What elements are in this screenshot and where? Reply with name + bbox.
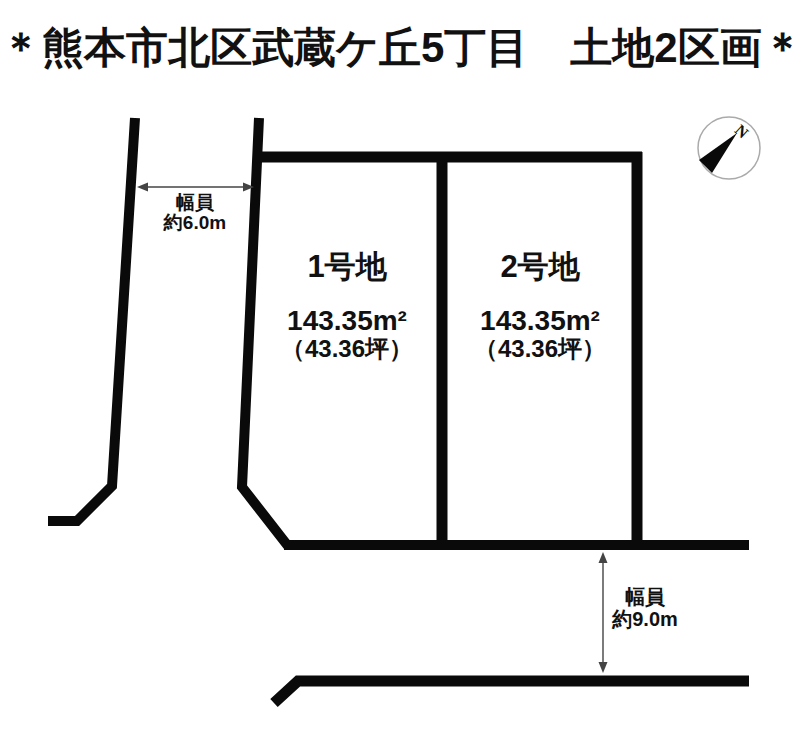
bottom-road-width-label: 幅員 約9.0m xyxy=(565,586,725,630)
left-road-width-caption: 幅員 xyxy=(115,193,275,213)
width-arrow-bottom-head xyxy=(599,662,608,673)
width-arrow-top-head xyxy=(599,552,608,563)
plot1-name-label: 1号地 xyxy=(247,250,447,283)
plot2-area-tsubo-label: （43.36坪） xyxy=(440,335,640,363)
width-arrow-left-head xyxy=(137,183,148,192)
left-road-line xyxy=(48,118,135,521)
bottom-road-width-caption: 幅員 xyxy=(565,586,725,608)
bottom-road-line xyxy=(274,681,749,703)
plot2-name-label: 2号地 xyxy=(440,250,640,283)
plot1-area-sqm-label: 143.35m² xyxy=(247,306,447,336)
compass-circle xyxy=(698,117,760,179)
compass: N xyxy=(698,117,760,179)
plot2-area-sqm-label: 143.35m² xyxy=(440,306,640,336)
plot1-area-tsubo-label: （43.36坪） xyxy=(247,335,447,363)
left-road-width-label: 幅員 約6.0m xyxy=(115,193,275,233)
land-layout-page: ＊熊本市北区武蔵ケ丘5丁目 土地2区画＊ xyxy=(0,0,800,740)
width-arrow-horizontal xyxy=(137,183,254,192)
left-road-width-value: 約6.0m xyxy=(115,213,275,233)
bottom-road-width-value: 約9.0m xyxy=(565,608,725,630)
